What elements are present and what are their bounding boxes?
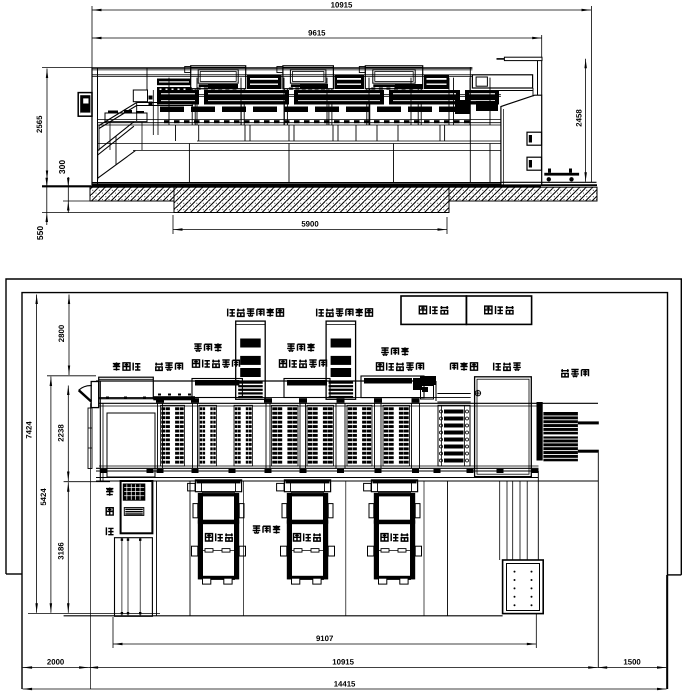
svg-text:5424: 5424 <box>39 488 48 506</box>
svg-text:5900: 5900 <box>301 220 319 229</box>
svg-text:550: 550 <box>35 226 45 240</box>
svg-text:2238: 2238 <box>56 424 65 442</box>
svg-text:3186: 3186 <box>56 542 65 560</box>
svg-text:1500: 1500 <box>623 658 641 667</box>
svg-text:2800: 2800 <box>57 324 66 342</box>
svg-text:10915: 10915 <box>331 1 353 10</box>
svg-text:7424: 7424 <box>25 421 34 439</box>
svg-text:2458: 2458 <box>575 109 584 127</box>
svg-text:2000: 2000 <box>47 658 65 667</box>
svg-text:9615: 9615 <box>308 29 326 38</box>
svg-text:9107: 9107 <box>316 634 333 643</box>
svg-text:10915: 10915 <box>332 658 354 667</box>
svg-text:300: 300 <box>57 160 67 174</box>
svg-text:2565: 2565 <box>35 115 44 133</box>
svg-text:14415: 14415 <box>334 680 356 689</box>
